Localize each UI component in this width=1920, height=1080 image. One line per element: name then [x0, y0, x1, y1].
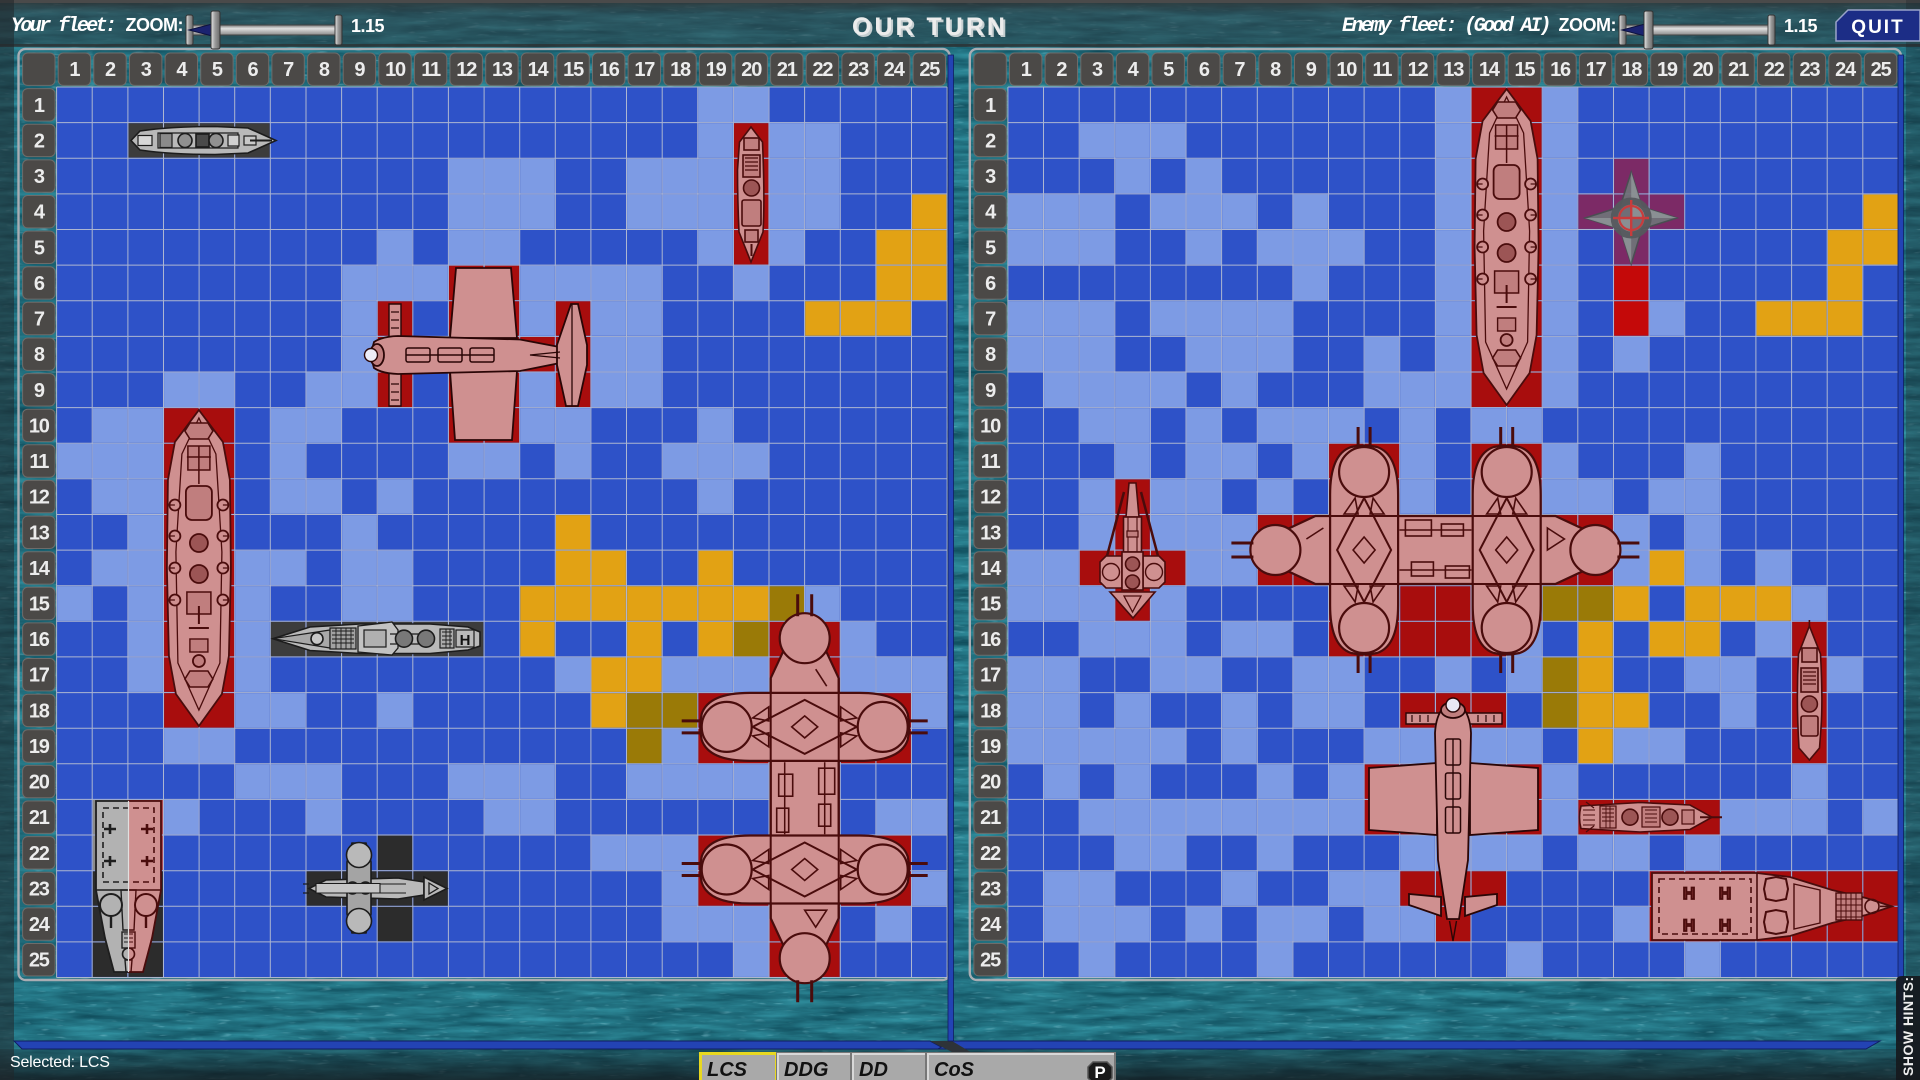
svg-text:H: H: [1683, 916, 1695, 935]
svg-text:10: 10: [385, 59, 406, 81]
svg-text:14: 14: [980, 558, 1002, 580]
svg-text:20: 20: [741, 59, 762, 81]
svg-text:5: 5: [34, 237, 45, 259]
svg-text:7: 7: [283, 59, 294, 81]
svg-text:QUIT: QUIT: [1851, 17, 1904, 38]
svg-text:21: 21: [980, 807, 1001, 829]
svg-text:1: 1: [985, 95, 996, 117]
svg-text:10: 10: [980, 415, 1001, 437]
svg-text:1.15: 1.15: [351, 16, 385, 36]
svg-text:23: 23: [1799, 59, 1820, 81]
svg-text:12: 12: [980, 487, 1001, 509]
svg-text:23: 23: [980, 879, 1001, 901]
svg-text:10: 10: [1336, 59, 1357, 81]
svg-text:23: 23: [29, 879, 50, 901]
svg-text:21: 21: [1728, 59, 1749, 81]
svg-text:DDG: DDG: [784, 1059, 828, 1080]
svg-text:9: 9: [354, 59, 365, 81]
svg-text:9: 9: [34, 380, 45, 402]
svg-text:12: 12: [1408, 59, 1429, 81]
svg-text:25: 25: [980, 950, 1001, 972]
svg-text:Selected: LCS: Selected: LCS: [10, 1054, 110, 1071]
svg-text:22: 22: [980, 843, 1001, 865]
svg-text:21: 21: [29, 807, 50, 829]
svg-text:Enemy fleet: (Good AI): Enemy fleet: (Good AI): [1342, 15, 1549, 38]
svg-text:3: 3: [141, 59, 152, 81]
svg-text:H: H: [460, 632, 471, 649]
svg-text:17: 17: [980, 665, 1001, 687]
svg-text:1: 1: [1021, 59, 1032, 81]
svg-text:14: 14: [528, 59, 550, 81]
svg-text:OUR TURN: OUR TURN: [852, 13, 1008, 41]
svg-text:24: 24: [29, 914, 51, 936]
svg-text:H: H: [1719, 916, 1731, 935]
svg-text:7: 7: [1234, 59, 1245, 81]
svg-text:13: 13: [980, 522, 1001, 544]
svg-text:10: 10: [29, 415, 50, 437]
svg-text:16: 16: [980, 629, 1001, 651]
svg-text:9: 9: [985, 380, 996, 402]
svg-text:12: 12: [456, 59, 477, 81]
svg-text:3: 3: [985, 166, 996, 188]
svg-text:5: 5: [1163, 59, 1174, 81]
svg-text:6: 6: [985, 273, 996, 295]
svg-text:22: 22: [812, 59, 833, 81]
svg-text:16: 16: [1550, 59, 1571, 81]
svg-text:8: 8: [34, 344, 45, 366]
svg-text:11: 11: [29, 451, 49, 473]
svg-text:6: 6: [248, 59, 259, 81]
svg-text:24: 24: [1835, 59, 1857, 81]
svg-text:8: 8: [1270, 59, 1281, 81]
svg-text:19: 19: [1657, 59, 1678, 81]
svg-text:20: 20: [980, 772, 1001, 794]
svg-text:3: 3: [1092, 59, 1103, 81]
svg-text:DD: DD: [859, 1059, 888, 1080]
svg-text:23: 23: [848, 59, 869, 81]
svg-text:LCS: LCS: [707, 1059, 748, 1080]
svg-text:19: 19: [706, 59, 727, 81]
svg-text:16: 16: [29, 629, 50, 651]
svg-text:2: 2: [1056, 59, 1067, 81]
svg-text:24: 24: [980, 914, 1002, 936]
svg-text:25: 25: [1871, 59, 1892, 81]
svg-text:1: 1: [34, 95, 45, 117]
svg-text:17: 17: [1586, 59, 1607, 81]
svg-text:13: 13: [1443, 59, 1464, 81]
svg-text:P: P: [1094, 1063, 1105, 1080]
svg-text:24: 24: [884, 59, 906, 81]
svg-text:21: 21: [777, 59, 798, 81]
svg-text:19: 19: [980, 736, 1001, 758]
svg-text:15: 15: [29, 594, 50, 616]
svg-text:11: 11: [421, 59, 441, 81]
svg-text:14: 14: [29, 558, 51, 580]
svg-text:16: 16: [599, 59, 620, 81]
svg-text:11: 11: [981, 451, 1001, 473]
svg-text:6: 6: [34, 273, 45, 295]
svg-text:19: 19: [29, 736, 50, 758]
svg-text:20: 20: [29, 772, 50, 794]
svg-text:H: H: [1683, 884, 1695, 903]
svg-text:18: 18: [670, 59, 691, 81]
svg-text:18: 18: [29, 700, 50, 722]
svg-text:7: 7: [985, 309, 996, 331]
svg-text:20: 20: [1693, 59, 1714, 81]
svg-text:5: 5: [985, 237, 996, 259]
svg-text:Your fleet:: Your fleet:: [11, 15, 114, 38]
svg-text:15: 15: [980, 594, 1001, 616]
svg-text:2: 2: [985, 130, 996, 152]
svg-text:7: 7: [34, 309, 45, 331]
svg-text:6: 6: [1199, 59, 1210, 81]
svg-text:15: 15: [563, 59, 584, 81]
svg-text:15: 15: [1514, 59, 1535, 81]
svg-text:ZOOM:: ZOOM:: [126, 15, 184, 35]
svg-text:22: 22: [1764, 59, 1785, 81]
svg-text:2: 2: [34, 130, 45, 152]
svg-text:3: 3: [34, 166, 45, 188]
svg-text:9: 9: [1306, 59, 1317, 81]
svg-text:1.15: 1.15: [1784, 16, 1818, 36]
svg-text:2: 2: [105, 59, 116, 81]
svg-text:ZOOM:: ZOOM:: [1559, 15, 1617, 35]
svg-text:14: 14: [1479, 59, 1501, 81]
svg-text:13: 13: [29, 522, 50, 544]
svg-text:H: H: [1719, 884, 1731, 903]
svg-text:12: 12: [29, 487, 50, 509]
svg-text:SHOW HINTS:: SHOW HINTS:: [1900, 976, 1916, 1076]
svg-text:CoS: CoS: [934, 1059, 975, 1080]
svg-text:18: 18: [980, 700, 1001, 722]
svg-text:13: 13: [492, 59, 513, 81]
svg-text:8: 8: [319, 59, 330, 81]
svg-text:5: 5: [212, 59, 223, 81]
svg-text:8: 8: [985, 344, 996, 366]
svg-text:11: 11: [1373, 59, 1393, 81]
svg-text:17: 17: [634, 59, 655, 81]
svg-text:18: 18: [1621, 59, 1642, 81]
svg-text:17: 17: [29, 665, 50, 687]
svg-text:25: 25: [919, 59, 940, 81]
svg-text:22: 22: [29, 843, 50, 865]
svg-text:25: 25: [29, 950, 50, 972]
svg-text:1: 1: [69, 59, 80, 81]
